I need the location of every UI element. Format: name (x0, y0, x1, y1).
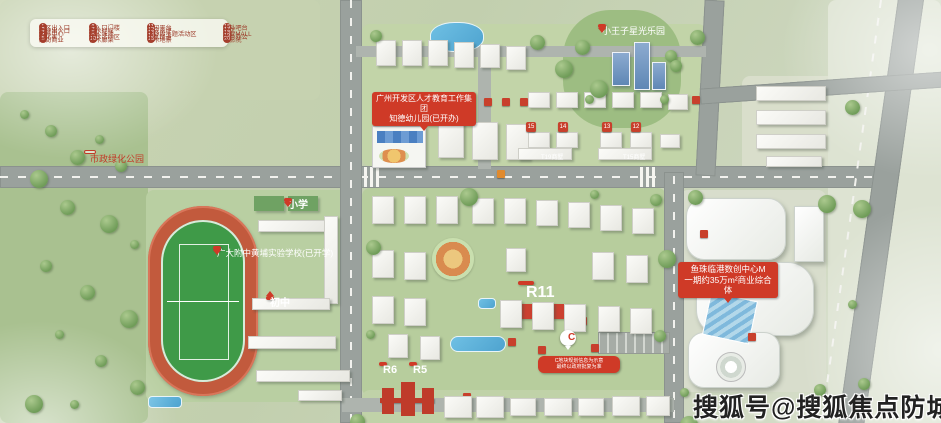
label-middle-school: 初中 (266, 296, 274, 300)
label-c-parcel: C (560, 330, 576, 346)
small-pool (478, 298, 496, 309)
building (592, 252, 614, 280)
tree (555, 60, 573, 78)
tree (30, 170, 48, 188)
castle-tower (612, 52, 630, 86)
building (528, 92, 550, 108)
kindergarten-building (372, 126, 426, 168)
building (372, 196, 394, 224)
building (766, 156, 822, 167)
tree (70, 400, 79, 409)
label-text: 一期约35万m²商业综合体 (682, 275, 774, 296)
building (420, 336, 440, 360)
building (668, 94, 688, 110)
kindergarten-playground (379, 149, 409, 163)
tree (366, 240, 381, 255)
building (528, 132, 550, 148)
castle-tower (652, 62, 666, 90)
entrance-gate-tower (382, 388, 394, 414)
tree (585, 95, 594, 104)
tree (690, 30, 705, 45)
building (630, 132, 652, 148)
tree (590, 190, 599, 199)
building (252, 298, 330, 310)
building (544, 398, 572, 416)
tree (650, 194, 662, 206)
legend-label: 沿街商业 (39, 35, 64, 44)
building (756, 110, 826, 125)
building (476, 396, 504, 418)
map-marker-chip (497, 170, 505, 178)
entrance-gate-tower (422, 388, 434, 414)
building (630, 308, 652, 334)
building (600, 132, 622, 148)
building (612, 396, 640, 416)
tree (845, 100, 860, 115)
tree (80, 285, 95, 300)
label-text: R5 (413, 364, 427, 378)
label-text: 知德幼儿园(已开办) (376, 114, 472, 124)
building (480, 44, 500, 68)
building (454, 42, 474, 68)
building (612, 92, 634, 108)
building (248, 336, 336, 349)
tree (660, 95, 669, 104)
tree (818, 195, 836, 213)
building (372, 296, 394, 324)
building (404, 298, 426, 326)
label-text: 广大附中黄埔实验学校(已开学) (217, 248, 333, 259)
tree (575, 40, 590, 55)
building (500, 300, 522, 328)
tree (350, 414, 365, 423)
map-marker-chip (591, 344, 599, 352)
label-r5: R5 (409, 362, 417, 366)
map-marker-chip (700, 230, 708, 238)
building (640, 92, 662, 108)
tree (590, 80, 608, 98)
building (532, 302, 554, 330)
tree (95, 135, 104, 144)
label-text: 鱼珠临港数创中心M (682, 264, 774, 275)
label-text: 市政绿化公园 (90, 152, 144, 165)
tree (20, 110, 29, 119)
label-text: R6 (383, 364, 397, 378)
tree (658, 250, 676, 268)
tree (25, 395, 43, 413)
mall-block-north (686, 198, 786, 260)
building (510, 398, 536, 416)
building (506, 46, 526, 70)
map-marker-chip (538, 346, 546, 354)
pointer-down-icon (420, 126, 428, 131)
map-marker-chip (520, 98, 528, 106)
label-primary-school: 小学 (284, 198, 292, 202)
entrance-gate-tower (401, 382, 415, 416)
tree (100, 215, 118, 233)
watermark-text: 搜狐号@搜狐焦点防城港站 (693, 388, 941, 423)
building (506, 248, 526, 272)
legend-label: 艺术地景 (147, 35, 172, 44)
building-number-marker: 13 (602, 122, 612, 132)
tree (688, 190, 703, 205)
building (376, 40, 396, 66)
building (428, 40, 448, 66)
building (444, 396, 472, 418)
label-kindergarten: 广州开发区人才教育工作集团 知德幼儿园(已开办) (372, 92, 476, 126)
building (632, 208, 654, 234)
label-text: 初中 (270, 298, 290, 311)
road-centerline (0, 176, 880, 178)
tree (70, 150, 85, 165)
building (598, 306, 620, 332)
tree (45, 125, 57, 137)
building (568, 202, 590, 228)
map-marker-chip (748, 333, 756, 341)
pointer-down-icon (598, 28, 606, 33)
building (402, 40, 422, 66)
crosswalk (364, 167, 382, 187)
pointer-down-icon (724, 298, 732, 303)
tree (95, 355, 107, 367)
building-number-marker: 14 (558, 122, 568, 132)
label-text: R11 (526, 283, 554, 303)
building-number-marker: 15 (526, 122, 536, 132)
tree (853, 200, 871, 218)
label-text: T19商墅 (541, 154, 563, 163)
label-text: T15商墅 (623, 154, 645, 163)
building (256, 370, 350, 382)
tree (120, 310, 138, 328)
map-legend: 1社区出入口2车行出入口3康养中心4文化家5沿街商业6主入口门楼7叠水迎宾8成人… (30, 19, 228, 47)
label-star-park: 小王子星光乐园 (598, 24, 606, 28)
tree (654, 330, 666, 342)
tree (670, 60, 682, 72)
map-marker-chip (508, 338, 516, 346)
label-r11: R11 (518, 281, 534, 285)
road-centerline (350, 0, 352, 423)
tree (40, 260, 52, 272)
building (388, 334, 408, 358)
label-text: 最终以政府批复为准 (542, 364, 616, 370)
building (600, 205, 622, 231)
tree (460, 188, 478, 206)
mall-circular-court (716, 352, 746, 382)
map-marker-chip (484, 98, 492, 106)
label-r6: R6 (379, 362, 387, 366)
label-text: 广州开发区人才教育工作集团 (376, 94, 472, 114)
pointer-up-icon (266, 291, 274, 296)
tree (60, 200, 75, 215)
label-text: C (568, 330, 575, 346)
road-centerline (673, 176, 675, 423)
map-marker-chip (502, 98, 510, 106)
legend-label: 艺术廊架 (89, 35, 114, 44)
building (254, 196, 284, 211)
building (298, 390, 342, 401)
building (556, 132, 578, 148)
building (436, 196, 458, 224)
label-mall: 鱼珠临港数创中心M 一期约35万m²商业综合体 (678, 262, 778, 298)
map-marker-chip (692, 96, 700, 104)
building (504, 198, 526, 224)
building (660, 134, 680, 148)
tree (130, 380, 145, 395)
label-c-disclaimer: C地块规划信息为示意 最终以政府批复为准 (538, 356, 620, 373)
castle-keep (634, 42, 650, 90)
tree (680, 388, 689, 397)
tree (55, 330, 64, 339)
building (536, 200, 558, 226)
building (756, 86, 826, 101)
tree (130, 240, 139, 249)
children-playground (432, 238, 474, 280)
label-school-banner: 广大附中黄埔实验学校(已开学) (213, 246, 221, 250)
building (472, 122, 498, 160)
building (626, 255, 648, 283)
building (756, 134, 826, 149)
building (564, 304, 586, 332)
tree (530, 35, 545, 50)
building (578, 398, 604, 416)
main-pool (450, 336, 506, 352)
masterplan-map: 1社区出入口2车行出入口3康养中心4文化家5沿街商业6主入口门楼7叠水迎宾8成人… (0, 0, 941, 423)
building-number-marker: 12 (631, 122, 641, 132)
label-text: 小王子星光乐园 (602, 26, 665, 37)
building (646, 396, 670, 416)
crosswalk (640, 167, 658, 187)
building (258, 220, 326, 232)
building (556, 92, 578, 108)
pointer-down-icon (284, 202, 292, 207)
legend-label: 电影院 (223, 35, 242, 44)
building (324, 216, 338, 304)
kindergarten-roof (377, 131, 423, 143)
pointer-down-icon (213, 250, 221, 255)
tree (370, 30, 382, 42)
building (404, 252, 426, 280)
tree (366, 330, 375, 339)
label-municipal-park: 市政绿化公园 (84, 150, 96, 154)
building (404, 196, 426, 224)
tree (848, 300, 857, 309)
